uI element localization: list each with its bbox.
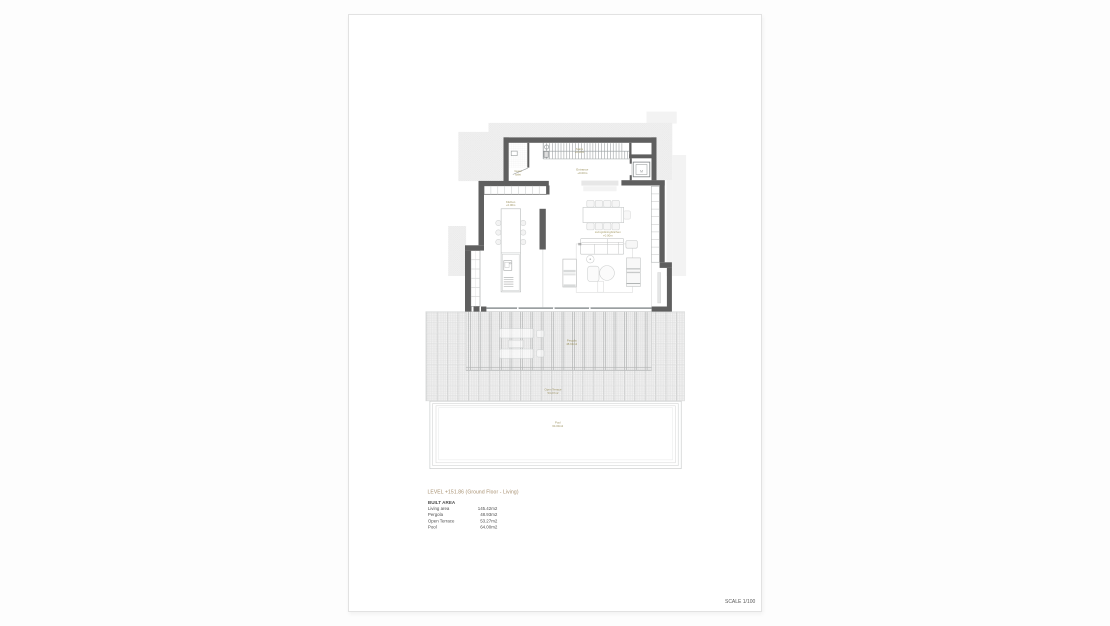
svg-text:Pool: Pool xyxy=(428,525,437,530)
svg-text:+0.00m: +0.00m xyxy=(575,150,585,154)
svg-text:+0.00m: +0.00m xyxy=(506,203,516,207)
svg-text:145.42m2: 145.42m2 xyxy=(478,506,498,511)
svg-text:toilet: toilet xyxy=(515,172,521,176)
svg-text:53.27m2: 53.27m2 xyxy=(548,391,559,395)
svg-text:M: M xyxy=(640,169,643,173)
svg-text:48.93m2: 48.93m2 xyxy=(480,512,498,517)
svg-text:64.00m2: 64.00m2 xyxy=(552,424,563,428)
svg-text:64.00m2: 64.00m2 xyxy=(480,525,498,530)
svg-text:Living area: Living area xyxy=(428,506,450,511)
svg-text:+0.00m: +0.00m xyxy=(577,171,588,175)
svg-text:Pergola: Pergola xyxy=(428,512,444,517)
svg-text:Open Terrace: Open Terrace xyxy=(428,519,455,524)
svg-text:SCALE 1/100: SCALE 1/100 xyxy=(725,599,756,605)
svg-text:+0.00m: +0.00m xyxy=(603,233,613,237)
svg-text:LEVEL +151.86 (Ground Floor -: LEVEL +151.86 (Ground Floor - Living) xyxy=(428,490,519,496)
svg-text:53.27m2: 53.27m2 xyxy=(480,519,498,524)
svg-text:48.93m2: 48.93m2 xyxy=(566,342,577,346)
svg-text:BUILT AREA: BUILT AREA xyxy=(428,500,456,505)
